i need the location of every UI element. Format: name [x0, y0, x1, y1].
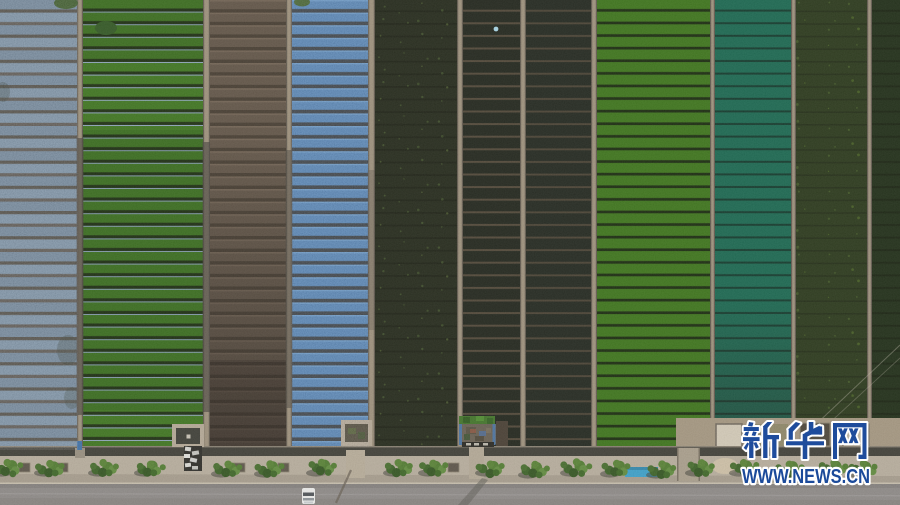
svg-text:WWW.NEWS.CN: WWW.NEWS.CN: [742, 465, 870, 488]
